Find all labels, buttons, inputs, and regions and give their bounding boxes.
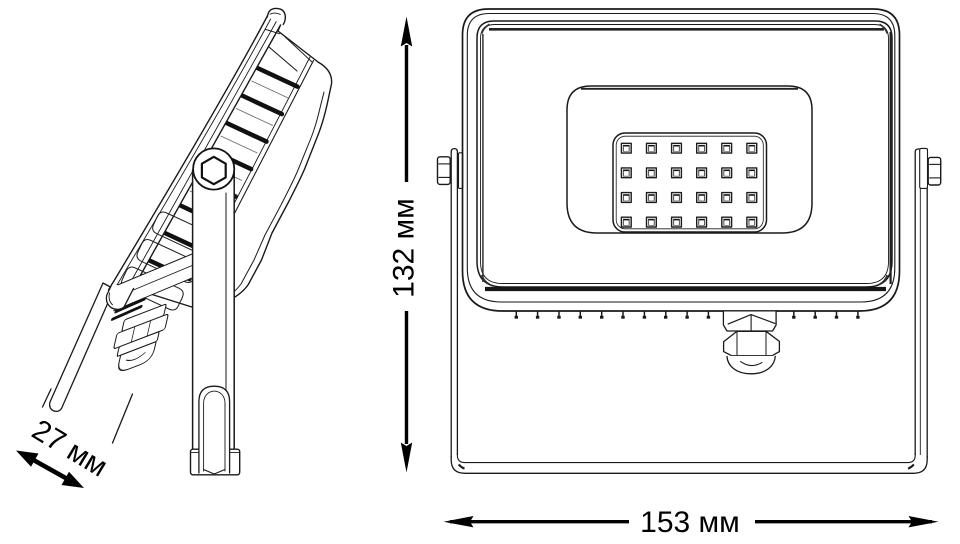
svg-text:153 мм: 153 мм <box>640 506 740 539</box>
svg-text:132 мм: 132 мм <box>387 198 420 298</box>
